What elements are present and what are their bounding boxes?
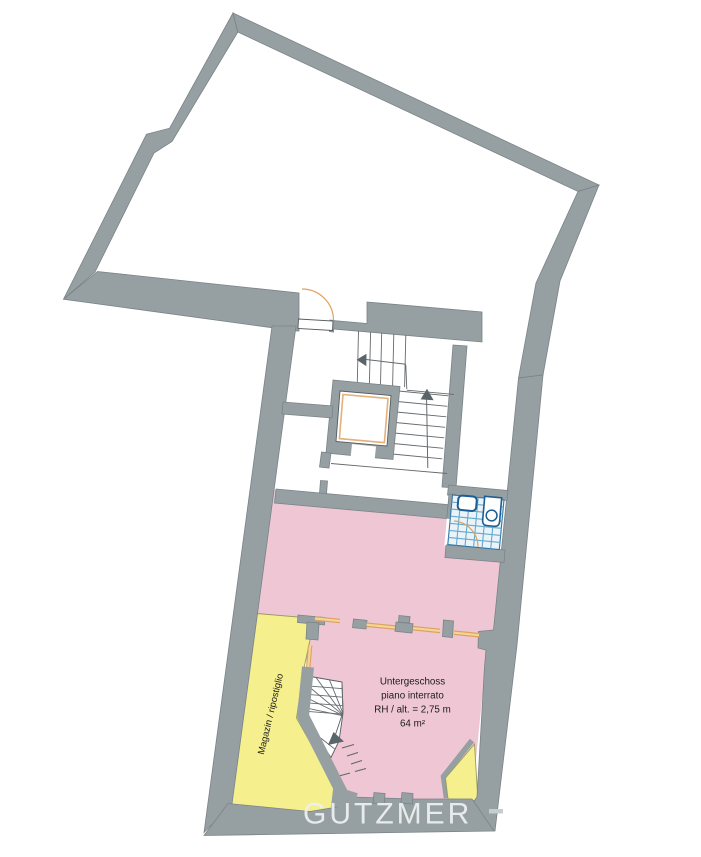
svg-text:64 m²: 64 m²	[400, 719, 426, 730]
svg-text:GUTZMER: GUTZMER	[303, 798, 472, 831]
svg-text:RH / alt. = 2,75 m: RH / alt. = 2,75 m	[374, 705, 451, 716]
svg-text:piano interrato: piano interrato	[381, 691, 444, 702]
svg-text:Untergeschoss: Untergeschoss	[380, 677, 445, 688]
